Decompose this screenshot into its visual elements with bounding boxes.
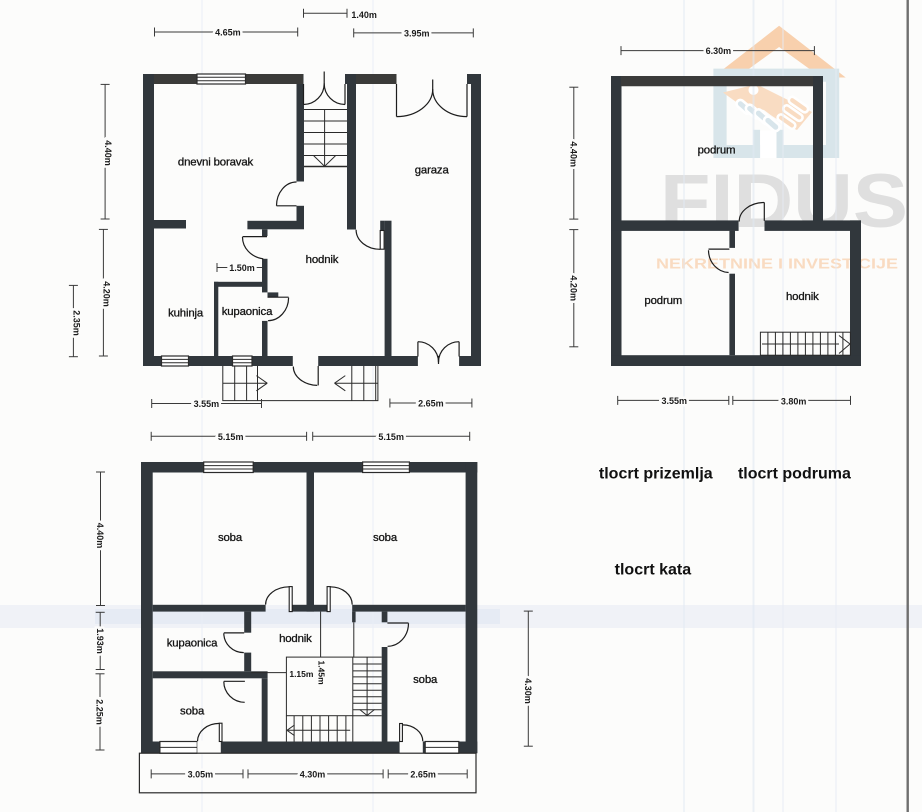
svg-text:garaza: garaza [415,164,450,176]
svg-text:podrum: podrum [644,295,682,307]
svg-text:podrum: podrum [698,144,736,156]
svg-text:tlocrt podruma: tlocrt podruma [738,465,851,482]
svg-text:hodnik: hodnik [306,254,339,266]
svg-text:2.65m: 2.65m [410,769,436,779]
svg-text:1.93m: 1.93m [95,628,105,654]
svg-text:hodnik: hodnik [786,291,819,303]
svg-text:4.20m: 4.20m [101,281,111,307]
svg-text:kuhinja: kuhinja [168,308,204,320]
svg-text:1.40m: 1.40m [351,10,377,20]
svg-text:5.15m: 5.15m [218,432,244,442]
svg-text:3.55m: 3.55m [194,399,220,409]
svg-text:4.40m: 4.40m [568,141,578,167]
svg-text:3.95m: 3.95m [404,29,430,39]
svg-text:6.30m: 6.30m [706,46,732,56]
svg-text:3.80m: 3.80m [781,397,807,407]
svg-text:5.15m: 5.15m [378,432,404,442]
svg-text:2.65m: 2.65m [418,399,444,409]
svg-text:2.25m: 2.25m [95,699,105,725]
svg-text:tlocrt prizemlja: tlocrt prizemlja [599,465,713,482]
svg-text:4.65m: 4.65m [215,28,241,38]
svg-text:1.45m: 1.45m [317,661,327,686]
svg-text:4.30m: 4.30m [300,769,326,779]
svg-text:soba: soba [218,532,243,544]
svg-text:soba: soba [413,674,438,686]
svg-text:4.30m: 4.30m [523,678,533,704]
svg-text:2.35m: 2.35m [71,310,81,336]
svg-text:1.50m: 1.50m [229,263,255,273]
svg-text:hodnik: hodnik [279,633,312,645]
svg-text:4.40m: 4.40m [103,140,113,166]
svg-text:kupaonica: kupaonica [222,306,273,318]
svg-text:1.15m: 1.15m [289,669,314,679]
svg-text:4.20m: 4.20m [568,275,578,301]
svg-text:kupaonica: kupaonica [167,638,218,650]
svg-text:tlocrt kata: tlocrt kata [615,561,692,578]
svg-text:soba: soba [180,705,205,717]
svg-text:3.55m: 3.55m [662,396,688,406]
svg-text:NEKRETNINE I INVESTICIJE: NEKRETNINE I INVESTICIJE [656,257,898,273]
svg-text:3.05m: 3.05m [188,769,214,779]
svg-text:dnevni boravak: dnevni boravak [178,157,254,169]
svg-text:4.40m: 4.40m [95,523,105,549]
svg-text:soba: soba [373,532,398,544]
